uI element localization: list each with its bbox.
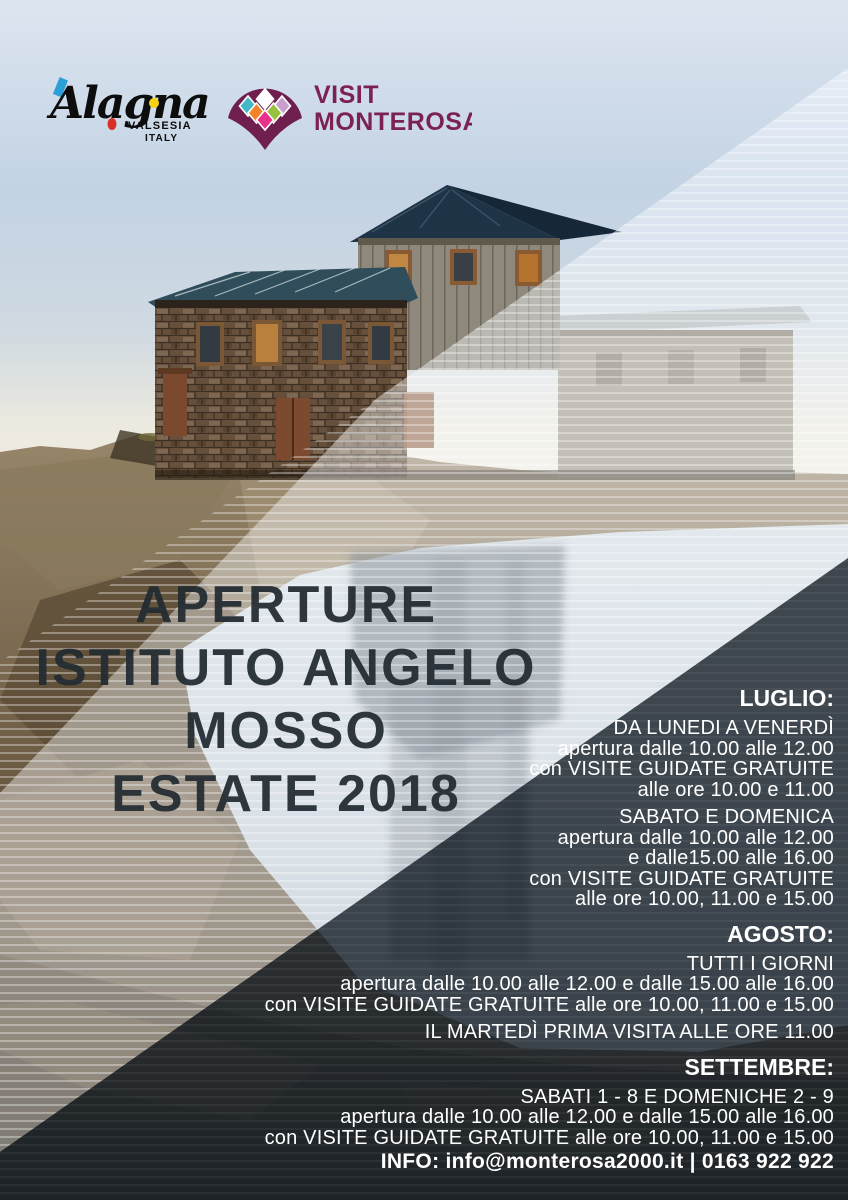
schedule-line: apertura dalle 10.00 alle 12.00 e dalle … (265, 974, 834, 995)
title-line-1: APERTURE (12, 574, 560, 637)
schedule-block: SABATI 1 - 8 E DOMENICHE 2 - 9 apertura … (265, 1087, 834, 1149)
schedule-line: DA LUNEDI A VENERDÌ (265, 718, 834, 739)
schedule-line: SABATO E DOMENICA (265, 807, 834, 828)
schedule-section-luglio: LUGLIO: DA LUNEDI A VENERDÌ apertura dal… (265, 686, 834, 910)
schedule-line: IL MARTEDÌ PRIMA VISITA ALLE ORE 11.00 (265, 1022, 834, 1043)
contact-info: INFO: info@monterosa2000.it | 0163 922 9… (381, 1150, 834, 1174)
section-header: AGOSTO: (265, 922, 834, 947)
schedule-line: apertura dalle 10.00 alle 12.00 e dalle … (265, 1107, 834, 1128)
schedule-line: apertura dalle 10.00 alle 12.00 (265, 739, 834, 760)
section-header: SETTEMBRE: (265, 1055, 834, 1080)
alagna-italy-label: ITALY (145, 133, 178, 144)
visit-monterosa-logo: VISIT MONTEROSA (222, 70, 472, 160)
schedule-line: con VISITE GUIDATE GRATUITE alle ore 10.… (265, 995, 834, 1016)
schedule-block: DA LUNEDI A VENERDÌ apertura dalle 10.00… (265, 718, 834, 800)
alagna-logo: Alagna VALSESIA ITALY (42, 62, 212, 152)
schedule-section-settembre: SETTEMBRE: SABATI 1 - 8 E DOMENICHE 2 - … (265, 1055, 834, 1149)
poster: Alagna VALSESIA ITALY VISIT MONTEROSA AP… (0, 0, 848, 1200)
schedule-line: apertura dalle 10.00 alle 12.00 (265, 828, 834, 849)
schedule-line: alle ore 10.00 e 11.00 (265, 780, 834, 801)
schedule-block: IL MARTEDÌ PRIMA VISITA ALLE ORE 11.00 (265, 1022, 834, 1043)
monterosa-visit-label: VISIT (314, 81, 379, 109)
schedule-section-agosto: AGOSTO: TUTTI I GIORNI apertura dalle 10… (265, 922, 834, 1043)
schedule-block: TUTTI I GIORNI apertura dalle 10.00 alle… (265, 954, 834, 1016)
schedule-line: e dalle15.00 alle 16.00 (265, 848, 834, 869)
schedule-line: con VISITE GUIDATE GRATUITE (265, 759, 834, 780)
schedule-block: SABATO E DOMENICA apertura dalle 10.00 a… (265, 807, 834, 910)
schedule-line: SABATI 1 - 8 E DOMENICHE 2 - 9 (265, 1087, 834, 1108)
monterosa-name-label: MONTEROSA (314, 108, 472, 136)
schedule-panel: LUGLIO: DA LUNEDI A VENERDÌ apertura dal… (265, 686, 834, 1148)
alagna-yellow-dot (149, 98, 159, 108)
schedule-line: con VISITE GUIDATE GRATUITE (265, 869, 834, 890)
monterosa-fan-icon (228, 89, 302, 150)
schedule-line: con VISITE GUIDATE GRATUITE alle ore 10.… (265, 1128, 834, 1149)
alagna-valsesia-label: VALSESIA (128, 120, 192, 132)
section-header: LUGLIO: (265, 686, 834, 711)
schedule-line: alle ore 10.00, 11.00 e 15.00 (265, 889, 834, 910)
alagna-red-dot (108, 118, 117, 130)
schedule-line: TUTTI I GIORNI (265, 954, 834, 975)
